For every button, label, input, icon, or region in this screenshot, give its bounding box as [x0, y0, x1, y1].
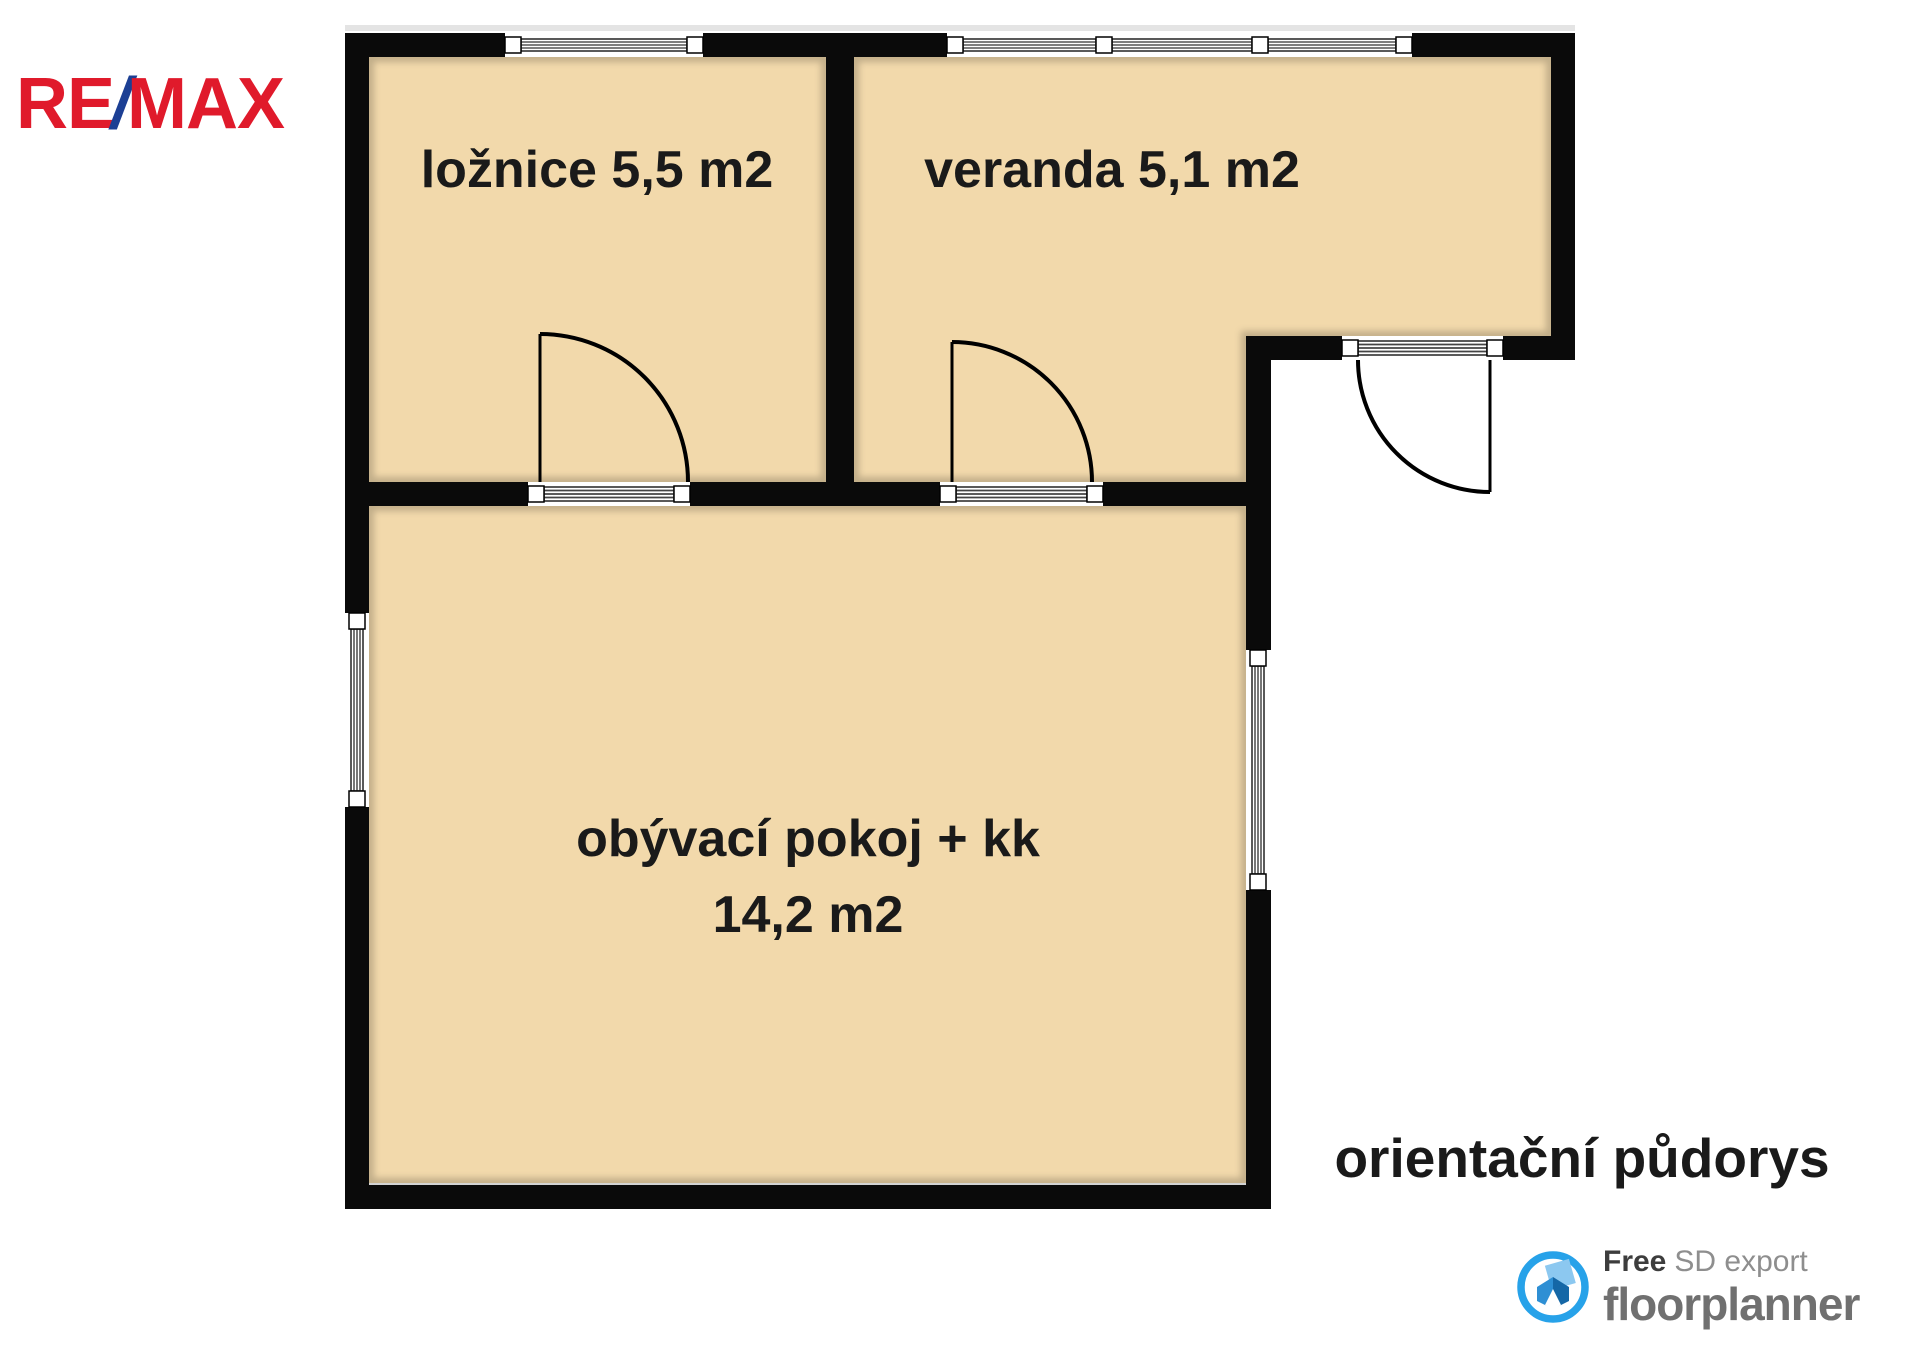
door-jamb: [674, 486, 690, 502]
door-jamb: [1342, 340, 1358, 356]
window-mullion: [1252, 37, 1268, 53]
floorplan-drawing: ložnice 5,5 m2 veranda 5,1 m2 obývací po…: [0, 0, 1920, 1358]
plan-caption: orientační půdorys: [1334, 1127, 1829, 1189]
window-jamb: [687, 37, 703, 53]
window-jamb: [1396, 37, 1412, 53]
window-loznice-top: [505, 33, 703, 57]
room-floor-veranda: [854, 57, 1551, 482]
window-right-wall: [1246, 650, 1271, 890]
floorplanner-logo: FreeSD export floorplanner: [1515, 1246, 1859, 1328]
window-veranda-top: [947, 33, 1412, 57]
floorplanner-house-icon: [1515, 1249, 1591, 1325]
door-swing-arc: [1358, 360, 1490, 492]
window-jamb: [349, 613, 365, 629]
page: RE/MAX: [0, 0, 1920, 1358]
door-exterior: [1342, 336, 1503, 492]
wall-right-veranda: [1551, 33, 1575, 360]
room-floors: [369, 57, 1551, 1183]
wall-bottom: [345, 1185, 1271, 1209]
window-mullion: [1096, 37, 1112, 53]
room-label-loznice: ložnice 5,5 m2: [421, 141, 774, 199]
door-jamb: [940, 486, 956, 502]
window-jamb: [505, 37, 521, 53]
wall-divider-vertical: [826, 57, 854, 482]
room-floor-loznice: [369, 57, 826, 482]
window-jamb: [1250, 650, 1266, 666]
room-area-obyvaci-pokoj: 14,2 m2: [713, 886, 904, 944]
door-jamb: [1087, 486, 1103, 502]
window-jamb: [1250, 874, 1266, 890]
window-left-wall: [345, 613, 369, 807]
plan-top-shadow: [345, 25, 1575, 31]
floorplanner-sd-export-label: SD export: [1674, 1245, 1807, 1278]
floorplanner-tagline: FreeSD export: [1603, 1246, 1859, 1278]
floorplanner-brand-name: floorplanner: [1603, 1280, 1859, 1328]
window-jamb: [349, 791, 365, 807]
door-jamb: [1487, 340, 1503, 356]
window-jamb: [947, 37, 963, 53]
floorplanner-free-label: Free: [1603, 1245, 1666, 1278]
room-label-obyvaci-pokoj: obývací pokoj + kk: [576, 810, 1040, 868]
floorplanner-logo-text: FreeSD export floorplanner: [1603, 1246, 1859, 1328]
wall-divider-horizontal: [345, 482, 1246, 506]
room-label-veranda: veranda 5,1 m2: [924, 141, 1300, 199]
door-jamb: [528, 486, 544, 502]
